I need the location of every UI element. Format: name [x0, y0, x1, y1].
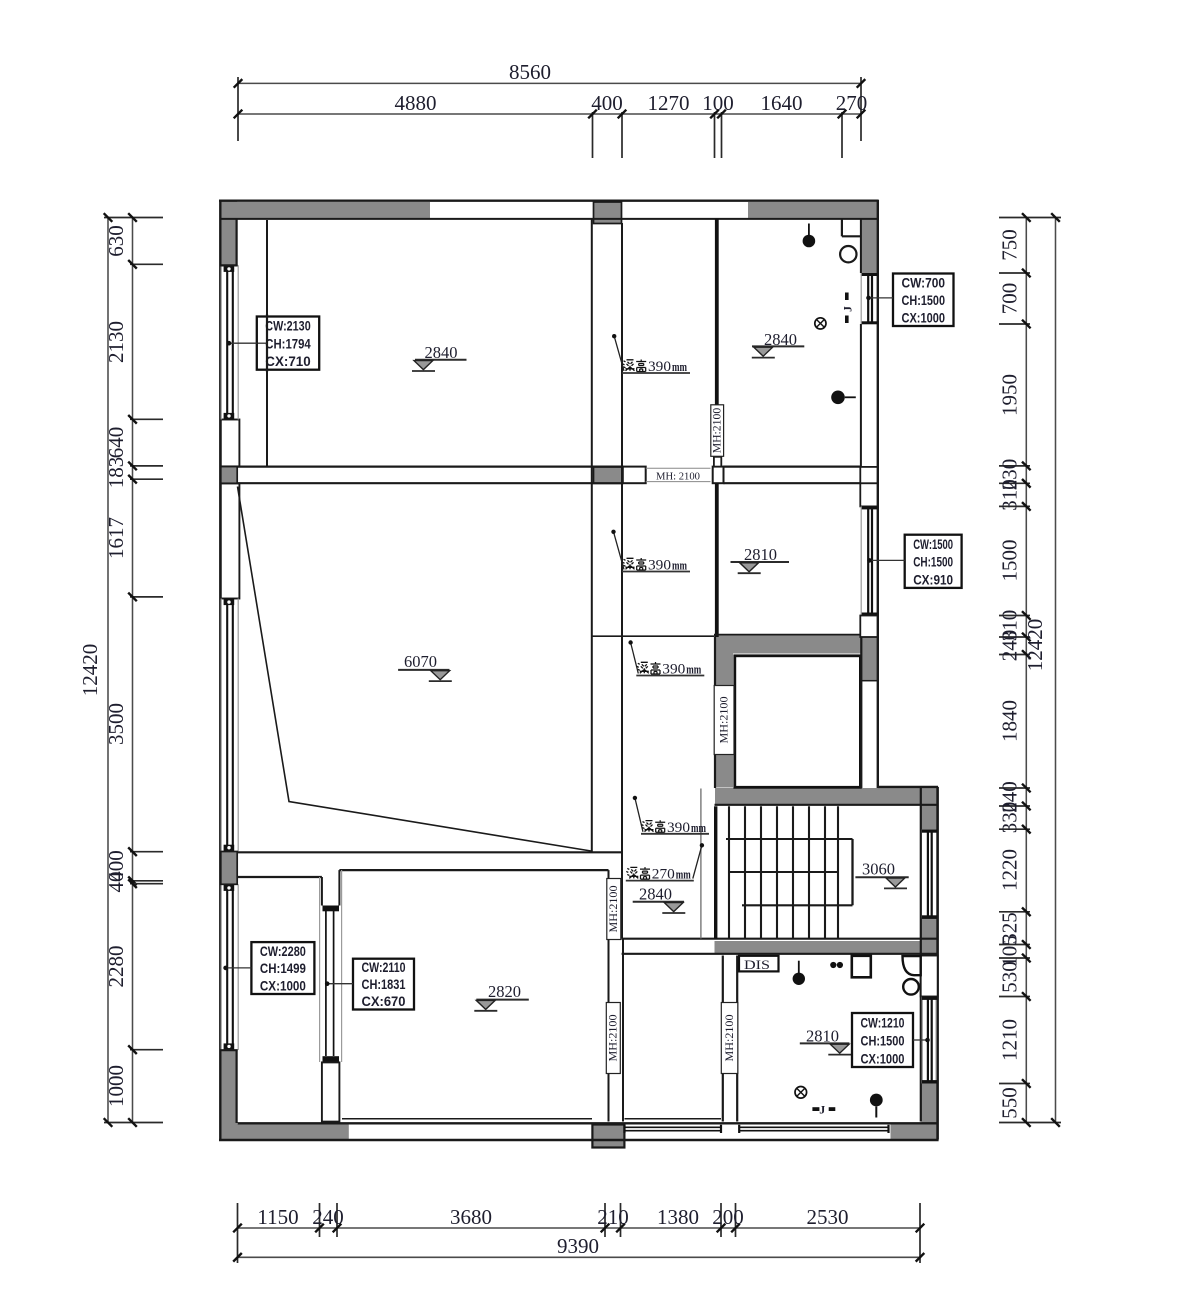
svg-text:100: 100	[702, 91, 734, 115]
svg-text:1617: 1617	[104, 517, 128, 559]
svg-text:1840: 1840	[998, 700, 1022, 742]
svg-text:240: 240	[998, 630, 1022, 662]
svg-text:J: J	[843, 306, 855, 312]
svg-text:2820: 2820	[488, 982, 521, 1001]
svg-text:CX:1000: CX:1000	[260, 979, 306, 994]
svg-text:CW:2280: CW:2280	[260, 944, 306, 959]
svg-text:390: 390	[667, 820, 690, 836]
svg-text:2530: 2530	[807, 1205, 849, 1229]
svg-text:MH:2100: MH:2100	[608, 885, 620, 932]
svg-text:270: 270	[652, 867, 675, 883]
svg-text:CW:1500: CW:1500	[913, 537, 953, 552]
svg-text:3680: 3680	[450, 1205, 492, 1229]
svg-text:CW:1210: CW:1210	[861, 1016, 905, 1031]
svg-text:270: 270	[836, 91, 868, 115]
svg-text:1220: 1220	[998, 849, 1022, 891]
svg-text:CH:1831: CH:1831	[362, 977, 406, 992]
svg-text:mm: mm	[672, 359, 687, 374]
svg-text:400: 400	[591, 91, 623, 115]
svg-text:mm: mm	[676, 867, 691, 882]
svg-text:1380: 1380	[657, 1205, 699, 1229]
svg-text:DIS: DIS	[744, 958, 770, 972]
svg-text:240: 240	[312, 1205, 344, 1229]
svg-text:3500: 3500	[104, 703, 128, 745]
svg-text:MH:2100: MH:2100	[718, 696, 730, 743]
svg-text:9390: 9390	[557, 1234, 599, 1258]
svg-text:CW:2130: CW:2130	[265, 319, 310, 334]
svg-text:CH:1499: CH:1499	[260, 961, 306, 976]
svg-text:1210: 1210	[998, 1019, 1022, 1061]
svg-text:210: 210	[597, 1205, 629, 1229]
svg-text:1500: 1500	[998, 540, 1022, 582]
svg-text:1150: 1150	[257, 1205, 298, 1229]
svg-text:J: J	[819, 1103, 825, 1117]
svg-text:MH:2100: MH:2100	[711, 408, 723, 454]
svg-text:CX:710: CX:710	[265, 354, 310, 369]
svg-text:CH:1500: CH:1500	[861, 1034, 905, 1049]
svg-text:MH:2100: MH:2100	[724, 1014, 736, 1061]
svg-text:6070: 6070	[404, 652, 437, 671]
svg-text:1000: 1000	[104, 1065, 128, 1107]
svg-text:750: 750	[998, 229, 1022, 261]
svg-text:1640: 1640	[761, 91, 803, 115]
svg-text:40: 40	[104, 872, 128, 893]
svg-text:4880: 4880	[395, 91, 437, 115]
svg-text:8560: 8560	[509, 60, 551, 84]
svg-text:CW:700: CW:700	[902, 276, 946, 291]
svg-text:630: 630	[104, 225, 128, 257]
svg-text:183: 183	[104, 457, 128, 489]
svg-text:530: 530	[998, 961, 1022, 993]
svg-text:700: 700	[998, 283, 1022, 315]
svg-text:12420: 12420	[1023, 619, 1047, 672]
svg-text:330: 330	[998, 802, 1022, 834]
svg-text:CX:1000: CX:1000	[861, 1052, 905, 1067]
svg-text:CX:910: CX:910	[913, 572, 953, 587]
svg-text:CH:1794: CH:1794	[265, 336, 311, 351]
svg-text:CX:1000: CX:1000	[902, 311, 946, 326]
svg-text:CH:1500: CH:1500	[902, 293, 946, 308]
svg-text:3060: 3060	[862, 860, 895, 879]
svg-text:CW:2110: CW:2110	[362, 960, 406, 975]
svg-text:1270: 1270	[648, 91, 690, 115]
svg-text:1950: 1950	[998, 374, 1022, 416]
svg-text:MH:2100: MH:2100	[608, 1014, 620, 1061]
svg-text:CX:670: CX:670	[362, 994, 406, 1009]
svg-text:2280: 2280	[104, 946, 128, 988]
svg-text:390: 390	[648, 359, 671, 375]
svg-text:MH: 2100: MH: 2100	[656, 470, 700, 482]
svg-text:200: 200	[712, 1205, 744, 1229]
svg-text:mm: mm	[672, 558, 687, 573]
svg-text:640: 640	[104, 427, 128, 459]
svg-text:390: 390	[648, 558, 671, 574]
svg-text:390: 390	[662, 662, 685, 678]
svg-text:mm: mm	[686, 662, 701, 677]
svg-text:CH:1500: CH:1500	[913, 555, 953, 570]
svg-text:mm: mm	[691, 820, 706, 835]
svg-text:2840: 2840	[639, 885, 672, 904]
svg-text:2130: 2130	[104, 321, 128, 363]
svg-text:12420: 12420	[78, 644, 102, 697]
svg-text:310: 310	[998, 479, 1022, 511]
svg-text:550: 550	[998, 1087, 1022, 1119]
